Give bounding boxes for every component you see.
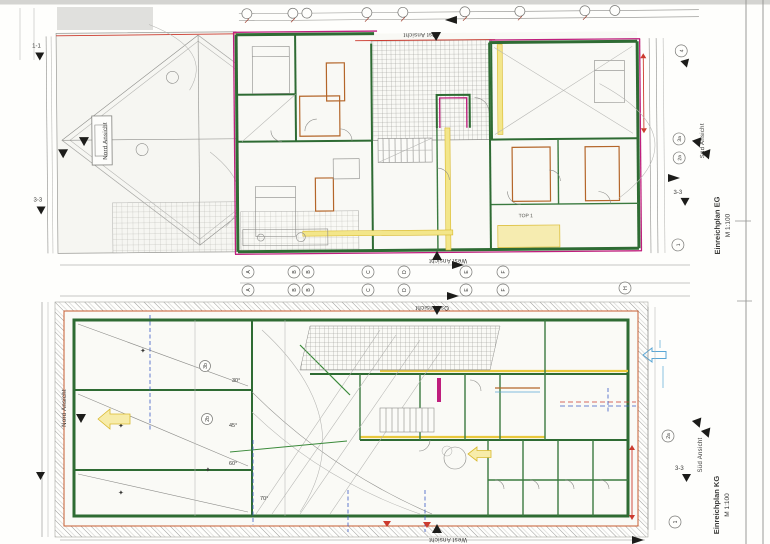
kg-terrace-hatch — [300, 326, 500, 370]
axis-mark-3a: 3a — [677, 136, 683, 142]
eg-terrace-hatch — [371, 40, 492, 141]
axis-mark-1-kg: 1 — [673, 520, 679, 523]
eg-plan: TOP 1 — [32, 4, 732, 260]
grid-letters-row2: A B B C D E F H — [242, 282, 631, 296]
room-label-top1: TOP 1 — [519, 213, 534, 219]
dim-arrow-icon — [668, 174, 680, 182]
view-label-north-eg: Nord Ansicht — [103, 122, 109, 160]
view-label-east-eg: Ost Ansicht — [403, 31, 437, 37]
grid-letter: C — [366, 288, 372, 292]
view-label-north-kg: Nord Ansicht — [62, 389, 68, 427]
kg-plan-scale: M 1:100 — [724, 493, 731, 517]
view-label-east-kg: Ost Ansicht — [415, 304, 449, 310]
axis-mark-2a: 2a — [677, 155, 683, 161]
eg-plan-scale: M 1:100 — [725, 213, 732, 237]
grid-letter: F — [501, 270, 507, 273]
eg-building: TOP 1 — [233, 29, 648, 255]
angle-label-60: 60° — [229, 461, 237, 467]
section-arrow-icon — [681, 198, 690, 206]
eg-title-block: Einreichplan EG M 1:100 — [713, 196, 733, 254]
angle-label-70: 70° — [260, 496, 268, 502]
eg-dim-top — [239, 5, 699, 26]
kg-magenta-wall — [437, 378, 441, 402]
view-label-south-kg: Süd Ansicht — [698, 437, 704, 472]
section-arrow-icon — [37, 206, 46, 214]
section-label-3-3-right: 3-3 — [673, 190, 682, 196]
kg-plan-title: Einreichplan KG — [712, 476, 721, 535]
axis-mark-4: 4 — [679, 49, 685, 52]
eg-plan-title: Einreichplan EG — [713, 196, 723, 254]
dim-arrow-icon — [447, 292, 459, 300]
section-arrow-icon — [35, 52, 44, 60]
axis-mark-2a-kg: 2a — [666, 433, 672, 439]
eg-dim-left: 1-1 3-3 — [32, 36, 53, 253]
level-marker-icon: ✦ — [140, 347, 146, 355]
eg-stairs — [378, 138, 432, 162]
view-label-west-kg: West Ansicht — [429, 536, 467, 542]
axis-mark-2b: 2b — [205, 416, 211, 422]
angle-label-30: 30° — [232, 378, 240, 384]
section-label-3-3-kg: 3-3 — [675, 466, 684, 472]
level-marker-icon: ✦ — [118, 489, 124, 497]
angle-label-45: 45° — [229, 423, 237, 429]
view-direction-icon — [692, 418, 704, 430]
plan-drawing: TOP 1 — [0, 0, 770, 544]
grid-letter: C — [366, 270, 372, 274]
grid-letter: D — [402, 288, 408, 292]
view-direction-icon — [680, 59, 691, 69]
drawing-sheet: TOP 1 — [0, 0, 770, 544]
kg-dim-right-marks: Süd Ansicht 2a 3-3 1 — [662, 418, 713, 528]
grid-letter: D — [402, 270, 408, 274]
axis-mark-1: 1 — [676, 243, 682, 246]
grid-letters-row1: A B B C D E F — [242, 266, 509, 278]
axis-mark-3b: 3b — [203, 363, 209, 369]
dim-arrow-icon — [445, 16, 457, 24]
section-label-1-1: 1-1 — [32, 43, 41, 49]
section-arrow-icon — [36, 472, 45, 480]
kg-title-block: Einreichplan KG M 1:100 — [712, 476, 731, 535]
section-label-3-3: 3-3 — [33, 197, 42, 203]
kg-plan: ✦ ✦ ✦ ✦ 3b 2b 30° 45° 60° 70° — [36, 302, 731, 544]
section-arrow-icon — [682, 474, 691, 482]
grid-letter: H — [623, 286, 629, 290]
grid-letter: F — [501, 288, 507, 291]
level-marker-icon: ✦ — [205, 466, 211, 474]
